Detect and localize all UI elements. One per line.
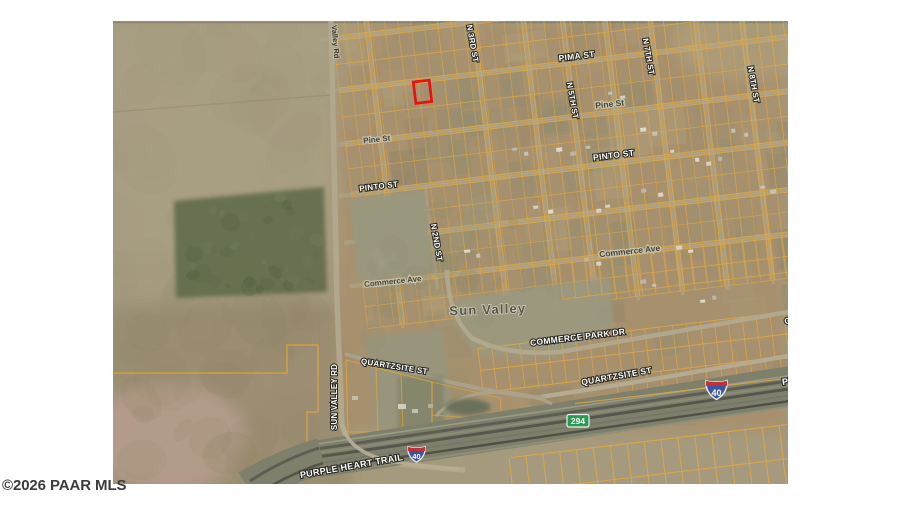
svg-text:40: 40 — [711, 388, 721, 398]
svg-text:Sun Valley: Sun Valley — [449, 301, 527, 319]
svg-text:©2026 PAAR MLS: ©2026 PAAR MLS — [2, 477, 127, 494]
svg-text:40: 40 — [412, 452, 420, 461]
svg-text:SUN VALLEY RD: SUN VALLEY RD — [330, 364, 339, 430]
svg-text:294: 294 — [571, 416, 585, 426]
